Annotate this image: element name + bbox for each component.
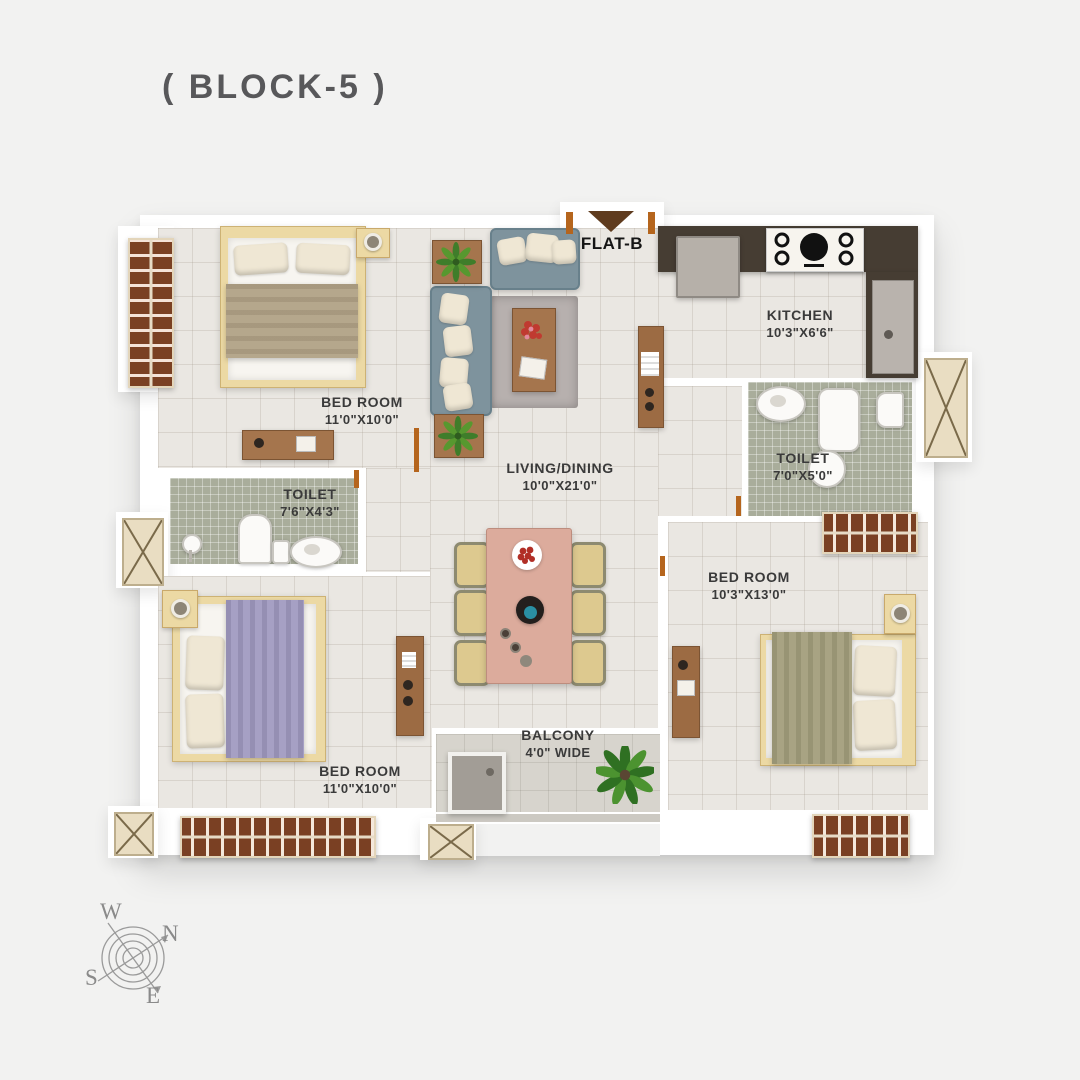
desk-item — [678, 660, 688, 670]
room-dims: 10'3"X6'6" — [766, 325, 833, 342]
room-name: TOILET — [280, 485, 340, 503]
compass-rose-icon — [70, 895, 200, 1015]
bed-right-blanket — [772, 632, 852, 764]
dining-chair — [454, 542, 490, 588]
label-bedroom-right: BED ROOM 10'3"X13'0" — [708, 568, 790, 604]
desk-item — [296, 436, 316, 452]
door-jamb — [736, 496, 741, 516]
desk-item — [254, 438, 264, 448]
table-item — [500, 628, 511, 639]
compass-east-label: E — [146, 983, 160, 1009]
console-table — [638, 326, 664, 428]
wardrobe-right — [822, 512, 918, 554]
bathtub — [818, 388, 860, 452]
shaft-right — [924, 358, 968, 458]
passage-left-floor — [366, 468, 430, 572]
passage-right-floor — [658, 386, 742, 516]
desk-item — [403, 696, 413, 706]
console-towels — [641, 352, 659, 376]
lamp-icon — [171, 599, 190, 618]
basin-bowl — [304, 544, 320, 555]
refrigerator — [676, 236, 740, 298]
dining-chair — [454, 640, 490, 686]
lamp-icon — [891, 604, 910, 623]
label-kitchen: KITCHEN 10'3"X6'6" — [766, 306, 833, 342]
flower-vase-icon — [516, 316, 546, 346]
room-dims: 10'0"X21'0" — [506, 478, 613, 495]
shaft-x-icon — [116, 814, 152, 854]
desk-item — [677, 680, 695, 696]
shaft-balcony — [428, 824, 474, 860]
washing-machine — [448, 752, 506, 814]
console-item — [645, 402, 654, 411]
wardrobe-top-left — [128, 238, 174, 388]
dining-chair — [570, 640, 606, 686]
pillow — [185, 693, 225, 748]
console-item — [645, 388, 654, 397]
compass-south-label: S — [85, 965, 98, 991]
sink-drain — [884, 330, 893, 339]
table-item — [520, 655, 532, 667]
shaft-x-icon — [926, 360, 966, 456]
shaft-x-icon — [430, 826, 472, 858]
lamp-icon — [364, 233, 382, 251]
room-name: BED ROOM — [319, 762, 401, 780]
plant-icon — [596, 746, 654, 804]
kitchen-sink — [872, 280, 914, 374]
compass-west-label: W — [100, 899, 122, 925]
wardrobe-bottom-right — [812, 814, 910, 858]
compass: W N S E — [70, 895, 200, 1015]
wardrobe-bottom-left — [180, 816, 376, 858]
sofa-pillow — [438, 292, 470, 326]
room-name: KITCHEN — [766, 306, 833, 324]
shower-stand — [189, 550, 192, 562]
toilet-bowl — [876, 392, 904, 428]
sofa-pillow — [442, 382, 474, 412]
room-dims: 7'6"X4'3" — [280, 504, 340, 521]
bidet — [272, 540, 290, 564]
room-dims: 11'0"X10'0" — [319, 781, 401, 798]
basin-bowl — [770, 395, 786, 407]
pillow — [185, 635, 225, 690]
floor-plan-page: { "title": "( BLOCK-5 )", "entry": { "fl… — [0, 0, 1080, 1080]
compass-north-label: N — [162, 921, 179, 947]
room-name: BED ROOM — [321, 393, 403, 411]
sofa-pillow — [496, 236, 528, 266]
bed-top-left-blanket — [226, 284, 358, 358]
book — [519, 356, 548, 379]
washing-machine-knob — [486, 768, 494, 776]
shaft-x-icon — [124, 520, 162, 584]
shower-head — [182, 534, 202, 554]
dining-chair — [570, 590, 606, 636]
label-bedroom-top-left: BED ROOM 11'0"X10'0" — [321, 393, 403, 429]
dining-chair — [570, 542, 606, 588]
desk-item — [403, 680, 413, 690]
sofa-pillow — [442, 324, 473, 357]
door-jamb — [648, 212, 655, 234]
label-bedroom-bottom-left: BED ROOM 11'0"X10'0" — [319, 762, 401, 798]
pillow — [853, 699, 898, 751]
room-dims: 11'0"X10'0" — [321, 412, 403, 429]
label-balcony: BALCONY 4'0" WIDE — [521, 726, 594, 762]
toilet-bowl — [238, 514, 272, 564]
pillow — [233, 242, 289, 276]
room-dims: 7'0"X5'0" — [773, 468, 833, 485]
room-name: BALCONY — [521, 726, 594, 744]
plant-icon — [436, 242, 476, 282]
bed-bottom-left-blanket — [226, 600, 304, 758]
plant-icon — [438, 416, 478, 456]
stove-burners-icon — [766, 228, 862, 270]
room-name: BED ROOM — [708, 568, 790, 586]
label-toilet-left: TOILET 7'6"X4'3" — [280, 485, 340, 521]
flat-label: FLAT-B — [581, 234, 643, 254]
shaft-bottom-left — [114, 812, 154, 856]
room-name: TOILET — [773, 449, 833, 467]
label-toilet-right: TOILET 7'0"X5'0" — [773, 449, 833, 485]
door-jamb — [566, 212, 573, 234]
room-name: LIVING/DINING — [506, 459, 613, 477]
dining-chair — [454, 590, 490, 636]
door-jamb — [414, 428, 419, 472]
door-jamb — [354, 470, 359, 488]
door-jamb — [660, 556, 665, 576]
cup — [524, 606, 537, 619]
entry-arrow-icon — [588, 211, 634, 232]
table-item — [510, 642, 521, 653]
fruit-icon — [515, 543, 539, 567]
room-dims: 4'0" WIDE — [521, 745, 594, 762]
pillow — [295, 243, 350, 276]
pillow — [853, 645, 898, 697]
shaft-left — [122, 518, 164, 586]
room-dims: 10'3"X13'0" — [708, 587, 790, 604]
label-living-dining: LIVING/DINING 10'0"X21'0" — [506, 459, 613, 495]
sofa-pillow — [551, 239, 577, 265]
page-title: ( BLOCK-5 ) — [162, 68, 388, 107]
desk-item — [402, 652, 416, 668]
